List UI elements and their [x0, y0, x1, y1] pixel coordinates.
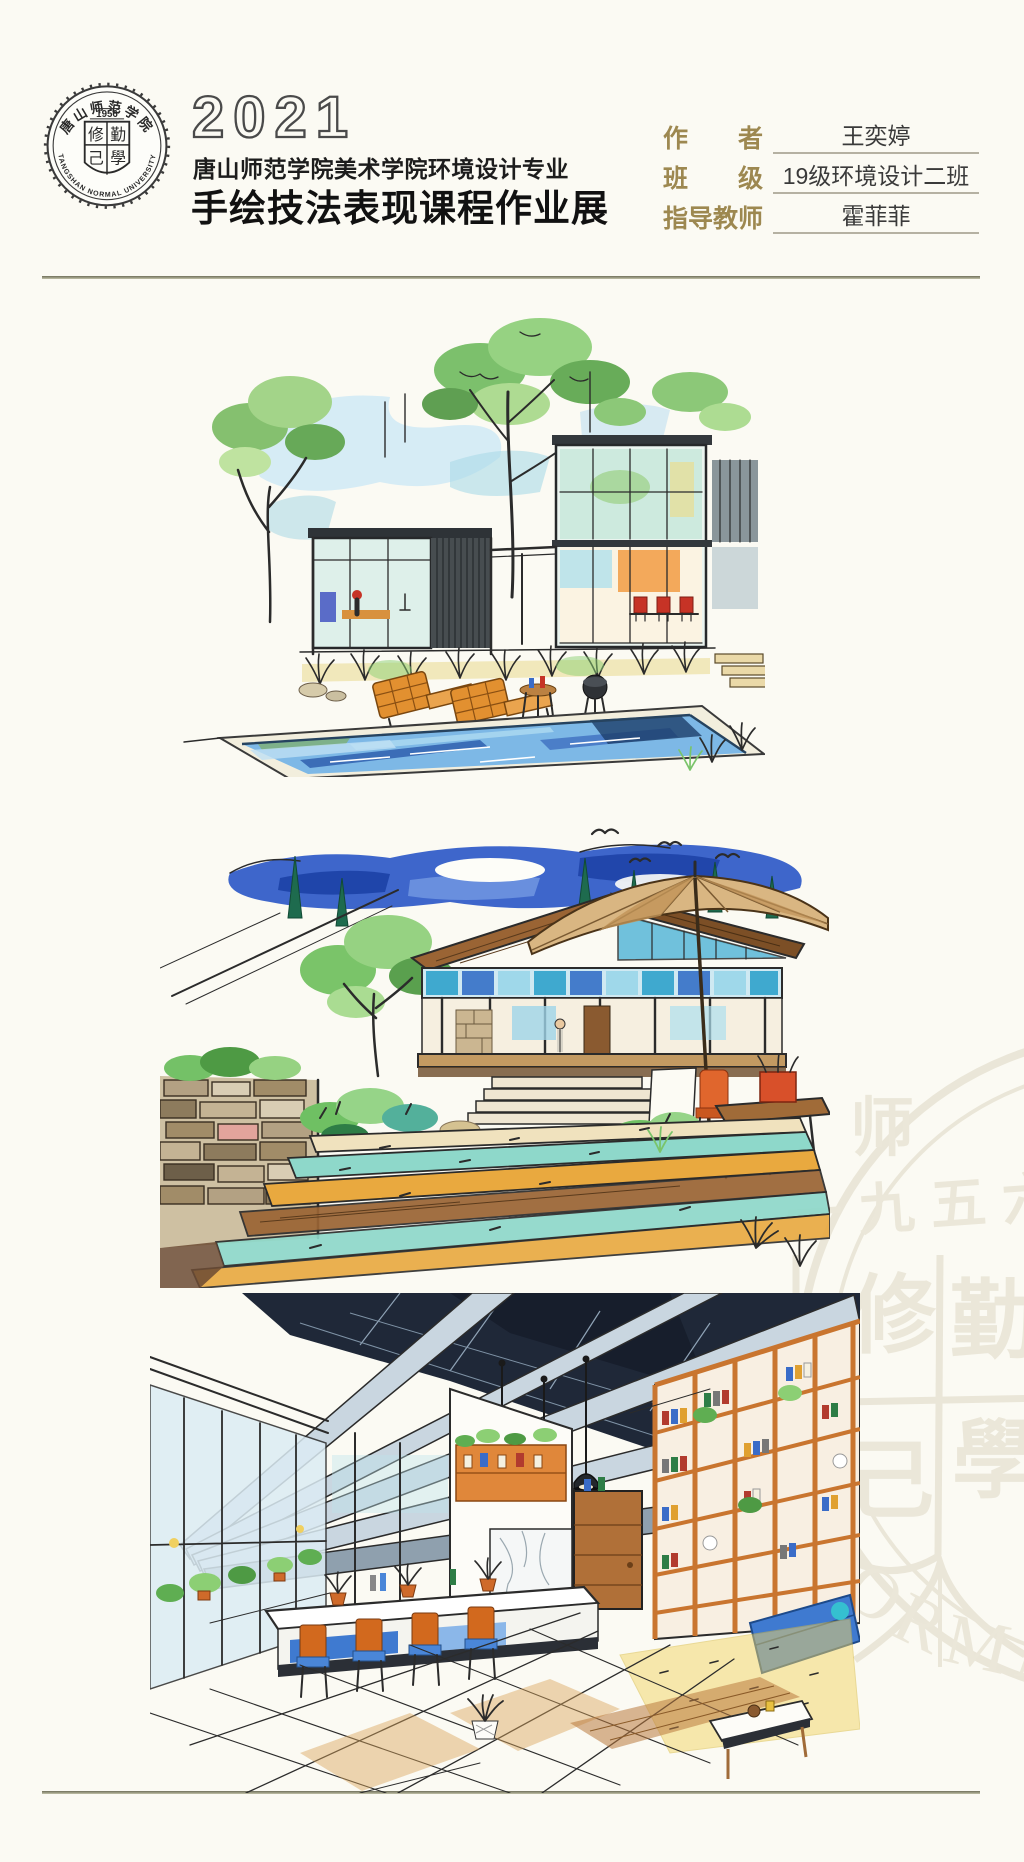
svg-text:學: 學 — [110, 148, 126, 167]
svg-text:己: 己 — [88, 150, 104, 167]
steps — [715, 654, 765, 687]
house — [412, 894, 804, 1124]
university-seal-logo: 唐山师范学院 1956 修 勤 己 學 TANGSHAN NORMAL UNIV… — [42, 70, 172, 216]
credit-row-author: 作 者 王奕婷 — [663, 120, 979, 154]
artwork-interior — [150, 1293, 860, 1793]
artwork-house-steps — [160, 818, 830, 1288]
svg-text:修: 修 — [88, 126, 104, 144]
credit-label: 班 级 — [663, 164, 773, 194]
left-glass-pavilion — [308, 528, 492, 654]
credit-label: 指导教师 — [663, 204, 773, 234]
exhibition-poster: 师 范 一九五六 修 勤 己 學 ORMA — [0, 0, 1024, 1862]
exhibition-title: 手绘技法表现课程作业展 — [191, 178, 609, 232]
credit-label: 作 者 — [663, 124, 773, 154]
right-glass-pavilion — [552, 435, 758, 647]
top-divider — [42, 276, 980, 279]
credit-value-class: 19级环境设计二班 — [773, 161, 979, 194]
svg-text:修: 修 — [850, 1268, 937, 1364]
watermark-school-fragment: 师 范 — [850, 1092, 1024, 1164]
svg-text:勤: 勤 — [950, 1273, 1024, 1369]
svg-text:勤: 勤 — [110, 126, 126, 144]
svg-text:學: 學 — [952, 1413, 1024, 1509]
credit-value-author: 王奕婷 — [773, 121, 979, 154]
credit-row-class: 班 级 19级环境设计二班 — [663, 160, 979, 194]
svg-text:己: 己 — [848, 1433, 934, 1529]
year-text: 2021 — [192, 86, 357, 150]
year-outline: 2021 — [190, 86, 410, 150]
credits-block: 作 者 王奕婷 班 级 19级环境设计二班 指导教师 霍菲菲 — [663, 120, 979, 240]
credit-value-advisor: 霍菲菲 — [773, 201, 979, 234]
credit-row-advisor: 指导教师 霍菲菲 — [663, 200, 979, 234]
artwork-pool-villa — [150, 292, 765, 777]
seal-founded-year: 1956 — [96, 109, 118, 120]
